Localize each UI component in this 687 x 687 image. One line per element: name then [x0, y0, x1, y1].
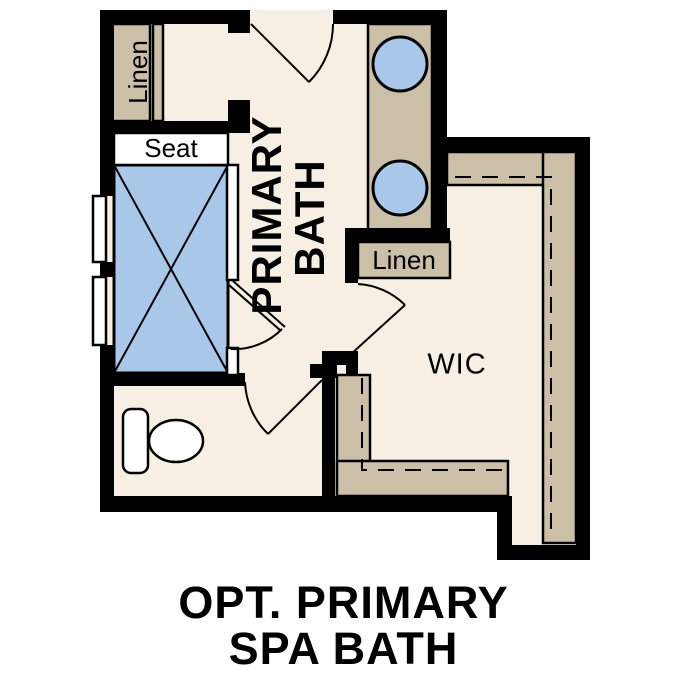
linen-closet-top-shelf-edge [153, 24, 163, 121]
floor-plan: Linen Seat PRIMARY BATH Linen WIC [0, 0, 687, 575]
caption-line-1: OPT. PRIMARY [0, 580, 687, 626]
wall-left-upper [100, 10, 114, 196]
wall-top-right [333, 10, 447, 24]
wall-vanity-right [432, 10, 447, 242]
plan-caption: OPT. PRIMARY SPA BATH [0, 580, 687, 673]
toilet-tank [123, 409, 148, 473]
wall-jog-b [322, 351, 348, 365]
label-linen-right: Linen [372, 245, 436, 275]
wall-left-stub [100, 262, 114, 277]
window-lower [93, 277, 106, 345]
wall-below-linen [100, 121, 240, 133]
label-linen-top: Linen [123, 40, 153, 104]
wall-linen-right-stub [345, 242, 358, 283]
label-primary-bath-line2: BATH [286, 159, 333, 277]
window-upper [93, 196, 106, 262]
label-seat: Seat [144, 133, 198, 163]
wic-shelf-right [543, 152, 576, 543]
wall-toilet-right [322, 378, 335, 498]
caption-line-2: SPA BATH [0, 626, 687, 672]
wall-top-left [100, 10, 250, 24]
wall-bottom [100, 496, 512, 512]
toilet-bowl [149, 420, 203, 462]
wall-left-lower [100, 345, 114, 512]
wall-step-vertical [497, 496, 512, 560]
label-wic: WIC [427, 349, 486, 381]
shower-glass-panel [227, 165, 238, 280]
wall-stub-linen-top [228, 10, 250, 33]
sink-upper [373, 37, 427, 91]
wall-shower-bottom [100, 373, 245, 386]
shower-glass-jamb [227, 348, 238, 375]
floor-plan-page: Linen Seat PRIMARY BATH Linen WIC OPT. P… [0, 0, 687, 687]
wall-jog-a [310, 364, 337, 378]
label-primary-bath-line1: PRIMARY [243, 115, 290, 314]
wall-wic-door-stub [346, 351, 358, 375]
sink-lower [373, 161, 427, 215]
wall-wic-top [447, 137, 590, 152]
wall-wic-right [576, 137, 590, 560]
